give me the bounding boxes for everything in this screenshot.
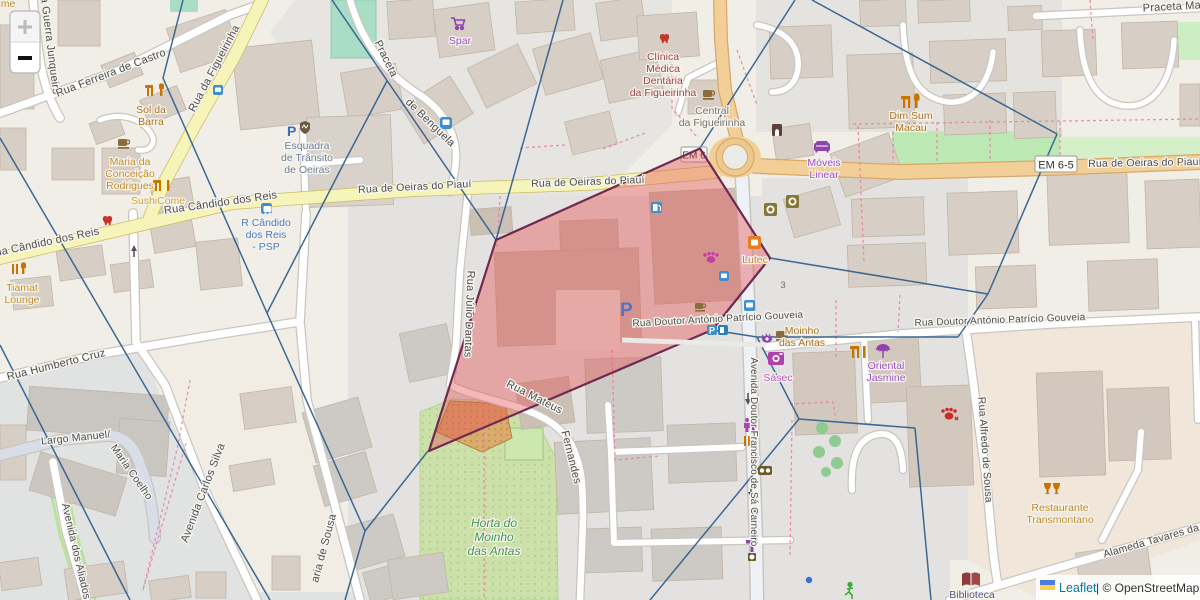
svg-text:dos Reis: dos Reis	[246, 229, 287, 241]
svg-text:me: me	[1, 0, 16, 10]
svg-text:Macau: Macau	[895, 122, 927, 134]
svg-text:Linear: Linear	[809, 169, 839, 181]
svg-text:Spar: Spar	[449, 35, 472, 47]
svg-text:Leaflet: Leaflet	[1059, 581, 1097, 595]
svg-text:Sol da: Sol da	[136, 104, 166, 116]
svg-text:Esquadra: Esquadra	[285, 140, 330, 152]
svg-text:Oriental: Oriental	[868, 360, 905, 372]
svg-text:das Antas: das Antas	[468, 544, 521, 558]
svg-text:Biblioteca: Biblioteca	[949, 589, 995, 600]
svg-text:P: P	[709, 326, 715, 336]
svg-text:de Trânsito: de Trânsito	[281, 152, 333, 164]
svg-text:P: P	[620, 300, 633, 321]
svg-text:Dentária: Dentária	[643, 75, 683, 87]
svg-text:Jasmine: Jasmine	[866, 372, 905, 384]
svg-text:R Cândido: R Cândido	[241, 217, 291, 229]
svg-text:| © OpenStreetMap: | © OpenStreetMap	[1096, 581, 1200, 595]
svg-text:Central: Central	[695, 105, 729, 117]
svg-text:Móveis: Móveis	[807, 157, 840, 169]
svg-text:Sásec: Sásec	[763, 372, 792, 384]
svg-text:Rodrigues: Rodrigues	[106, 180, 154, 192]
svg-text:Conceição: Conceição	[105, 168, 155, 180]
svg-text:Horta do: Horta do	[471, 516, 517, 530]
svg-text:Moinho: Moinho	[785, 325, 820, 337]
svg-text:de Oeiras: de Oeiras	[284, 164, 330, 176]
svg-text:Moinho: Moinho	[474, 530, 514, 544]
svg-text:P: P	[287, 123, 296, 139]
svg-text:Avenida Doutor Francisco de Sá: Avenida Doutor Francisco de Sá Carneiro	[748, 358, 759, 547]
svg-text:SushiCome: SushiCome	[131, 195, 185, 207]
svg-text:Clínica: Clínica	[647, 51, 679, 63]
svg-text:Dim Sum: Dim Sum	[889, 110, 932, 122]
svg-text:3: 3	[780, 280, 785, 291]
svg-text:Transmontano: Transmontano	[1026, 514, 1093, 526]
svg-text:- PSP: - PSP	[252, 241, 279, 253]
svg-text:EM 6-5: EM 6-5	[1038, 160, 1073, 172]
svg-text:Restaurante: Restaurante	[1031, 502, 1088, 514]
svg-text:das Antas: das Antas	[779, 337, 825, 349]
svg-text:Lutec: Lutec	[742, 254, 768, 266]
svg-text:Médica: Médica	[646, 63, 680, 75]
svg-text:da Figueirinha: da Figueirinha	[679, 117, 746, 129]
svg-text:Barra: Barra	[138, 116, 164, 128]
svg-text:Lounge: Lounge	[4, 294, 39, 306]
svg-text:Tiamat: Tiamat	[6, 282, 38, 294]
svg-text:da Figueirinha: da Figueirinha	[630, 87, 697, 99]
svg-text:Rua de Oeiras do Piauí: Rua de Oeiras do Piauí	[1088, 156, 1200, 170]
svg-text:Maria da: Maria da	[110, 156, 151, 168]
